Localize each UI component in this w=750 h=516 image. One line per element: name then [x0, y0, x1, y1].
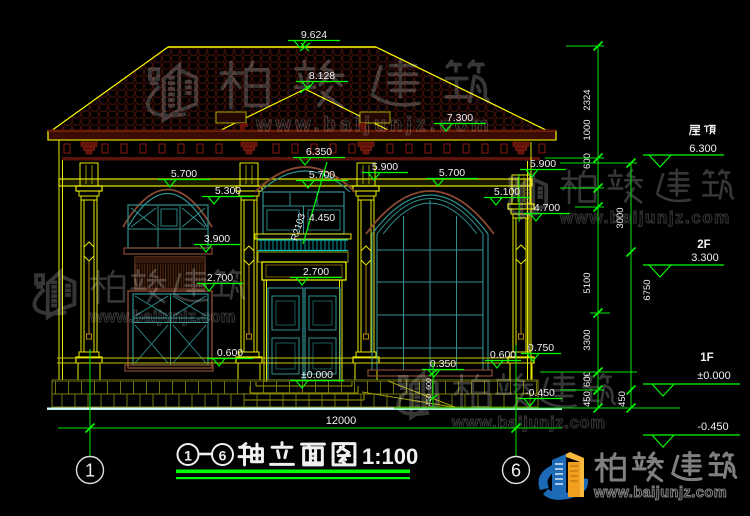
svg-text:1F: 1F	[700, 352, 713, 364]
svg-text:3000: 3000	[615, 207, 626, 228]
svg-text:2F: 2F	[697, 239, 710, 251]
svg-text:1: 1	[85, 461, 95, 481]
svg-text:5.100: 5.100	[494, 186, 520, 198]
svg-text:2.700: 2.700	[207, 272, 233, 284]
svg-text:5.700: 5.700	[171, 168, 197, 180]
svg-text:0.350: 0.350	[430, 358, 456, 370]
svg-text:0.600: 0.600	[490, 349, 516, 361]
svg-text:1:100: 1:100	[362, 444, 418, 469]
svg-text:450: 450	[426, 394, 433, 406]
svg-text:8.128: 8.128	[309, 70, 335, 82]
svg-text:5.700: 5.700	[439, 167, 465, 179]
svg-text:12000: 12000	[326, 415, 357, 427]
svg-text:6750: 6750	[642, 279, 653, 300]
svg-text:3.900: 3.900	[204, 233, 230, 245]
svg-text:600: 600	[582, 371, 593, 387]
svg-text:6: 6	[511, 461, 521, 481]
svg-text:7.300: 7.300	[447, 112, 473, 124]
svg-text:6.350: 6.350	[306, 146, 332, 158]
svg-text:3.300: 3.300	[691, 252, 719, 264]
svg-text:-0.450: -0.450	[525, 387, 555, 399]
svg-text:1: 1	[184, 448, 192, 464]
svg-text:600: 600	[426, 378, 433, 390]
svg-text:4.700: 4.700	[534, 202, 560, 214]
svg-text:±0.000: ±0.000	[697, 370, 731, 382]
svg-text:5.300: 5.300	[215, 185, 241, 197]
svg-text:±0.000: ±0.000	[301, 369, 333, 381]
svg-text:www.baijunjz.com: www.baijunjz.com	[451, 414, 606, 432]
svg-text:2.700: 2.700	[303, 266, 329, 278]
svg-text:-0.450: -0.450	[697, 421, 728, 433]
svg-text:5.900: 5.900	[372, 161, 398, 173]
svg-text:4.450: 4.450	[309, 212, 335, 224]
svg-text:6.300: 6.300	[689, 143, 717, 155]
svg-text:5100: 5100	[582, 272, 593, 293]
svg-text:450: 450	[582, 391, 593, 407]
svg-text:600: 600	[582, 153, 593, 169]
svg-text:0.600: 0.600	[217, 347, 243, 359]
svg-text:www.baijunjz.com: www.baijunjz.com	[593, 485, 727, 501]
svg-text:0.750: 0.750	[528, 342, 554, 354]
svg-text:1000: 1000	[582, 119, 593, 140]
svg-text:450: 450	[617, 391, 628, 407]
svg-text:3300: 3300	[582, 329, 593, 350]
svg-text:2324: 2324	[582, 89, 593, 110]
svg-text:5.900: 5.900	[530, 158, 556, 170]
svg-text:9.624: 9.624	[301, 29, 327, 41]
svg-text:www.baijunjz.com: www.baijunjz.com	[89, 308, 236, 326]
svg-text:6: 6	[219, 448, 227, 464]
svg-text:www.baijunjz.com: www.baijunjz.com	[559, 208, 731, 227]
